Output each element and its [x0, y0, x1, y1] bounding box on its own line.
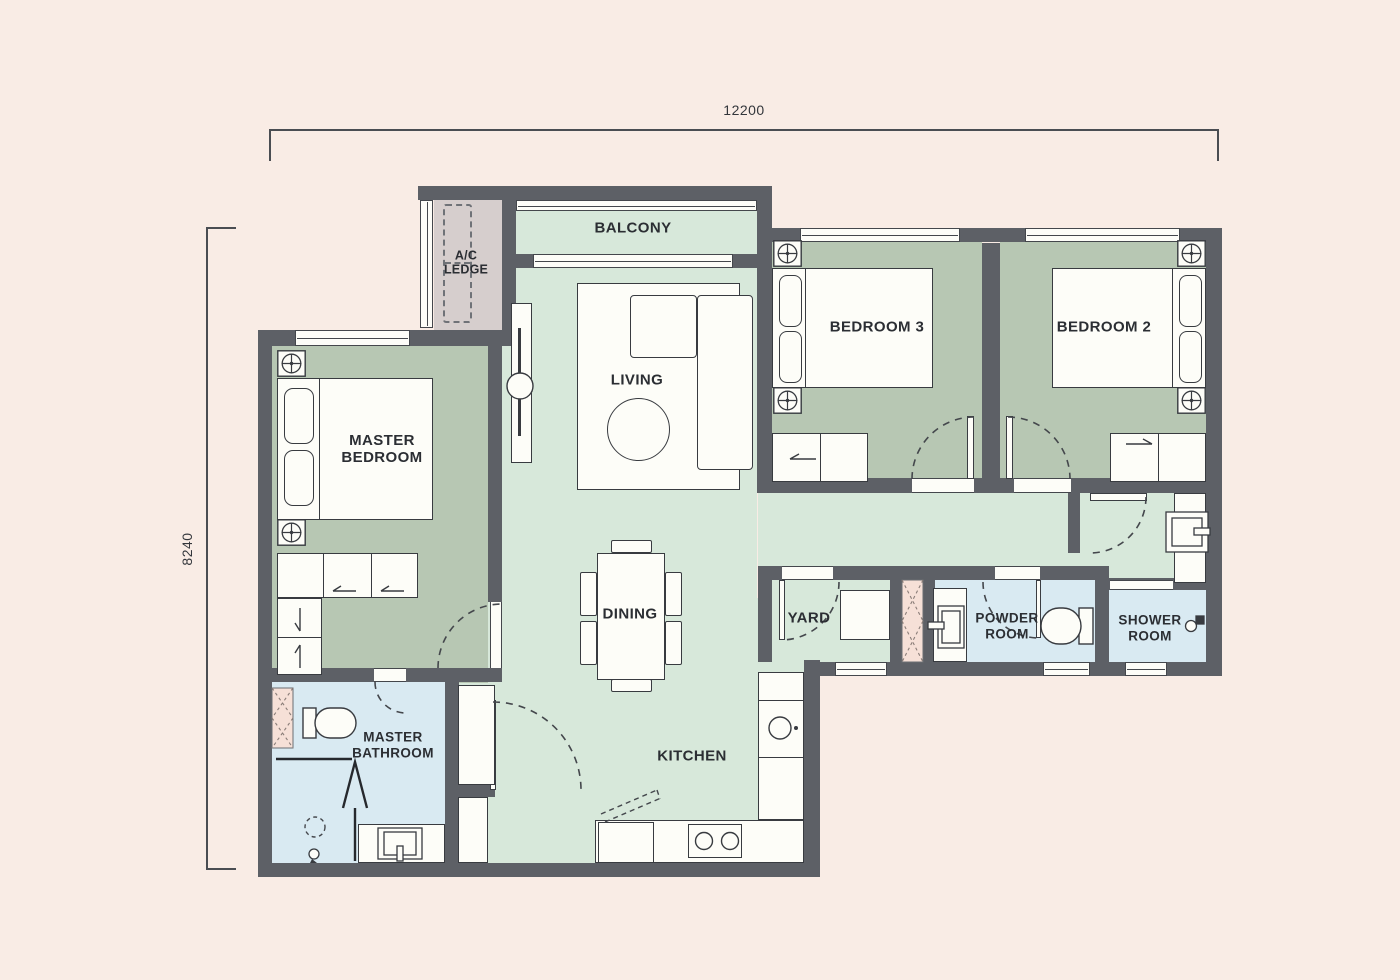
label-line: ROOM	[975, 626, 1038, 642]
kitchen-sink-unit	[758, 700, 804, 758]
balcony-railing	[516, 200, 757, 211]
dimension-tick	[269, 129, 271, 161]
window	[800, 228, 960, 242]
door-threshold	[912, 478, 974, 493]
dimension-tick	[1217, 129, 1219, 161]
door-threshold	[782, 566, 833, 580]
label-powder-room: POWDER ROOM	[975, 610, 1038, 641]
wall	[488, 346, 502, 602]
label-line: LEDGE	[444, 263, 488, 277]
label-line: A/C	[444, 249, 488, 263]
label-master-bathroom: MASTER BATHROOM	[352, 729, 434, 760]
wall	[890, 566, 902, 676]
wardrobe-divider	[820, 434, 821, 481]
window	[835, 662, 887, 676]
wardrobe-master-horizontal	[277, 553, 418, 598]
wall	[445, 682, 459, 863]
wall	[258, 863, 820, 877]
dimension-tick	[206, 227, 236, 229]
label-living: LIVING	[611, 371, 663, 388]
floor-plan: 12200 8240	[0, 0, 1400, 980]
label-line: MASTER	[352, 729, 434, 745]
wall	[757, 186, 772, 493]
label-kitchen: KITCHEN	[657, 747, 726, 764]
wardrobe-bedroom3	[772, 433, 868, 482]
door-leaf-yard	[779, 580, 785, 640]
pillow	[284, 450, 314, 506]
dining-chair	[580, 572, 597, 616]
door-leaf-bedroom3	[967, 416, 974, 479]
sofa-chaise	[630, 295, 697, 358]
tall-cabinet	[458, 685, 495, 785]
wardrobe-divider	[371, 554, 372, 597]
dining-chair	[611, 679, 652, 692]
label-yard: YARD	[788, 609, 831, 626]
sliding-door-shower	[1110, 580, 1173, 590]
window	[295, 330, 410, 346]
wall	[258, 330, 272, 877]
dimension-width-label: 12200	[723, 102, 764, 118]
label-line: MASTER	[341, 432, 422, 449]
dimension-line-left	[206, 228, 208, 870]
label-bedroom2: BEDROOM 2	[1057, 318, 1151, 335]
pillow	[284, 388, 314, 444]
wardrobe-divider	[323, 554, 324, 597]
wardrobe-divider	[278, 637, 321, 638]
washing-machine	[840, 590, 890, 640]
label-balcony: BALCONY	[595, 219, 672, 236]
dining-chair	[580, 621, 597, 665]
wall	[1068, 493, 1080, 553]
kitchen-hob-unit	[688, 824, 742, 858]
wall	[1206, 228, 1222, 676]
window	[1125, 662, 1167, 676]
coffee-table	[607, 398, 670, 461]
wall	[982, 243, 1000, 493]
dimension-line-top	[270, 129, 1219, 131]
ac-ledge-louvre	[420, 200, 433, 328]
wall	[1040, 566, 1095, 580]
window	[1043, 662, 1090, 676]
bathroom-vanity	[358, 824, 445, 863]
door-threshold	[490, 602, 502, 668]
label-shower-room: SHOWER ROOM	[1118, 612, 1181, 643]
label-line: BEDROOM	[341, 449, 422, 466]
wardrobe-divider	[1158, 434, 1159, 481]
wardrobe-bedroom2	[1110, 433, 1206, 482]
dimension-height-label: 8240	[179, 532, 195, 565]
pillow	[1179, 331, 1202, 383]
label-dining: DINING	[603, 605, 658, 622]
tv-console	[511, 303, 532, 463]
label-line: ROOM	[1118, 628, 1181, 644]
entrance-door-leaf	[1090, 493, 1147, 501]
door-threshold	[1014, 478, 1071, 493]
wall	[758, 566, 772, 662]
sofa	[697, 295, 753, 470]
pillow	[779, 331, 802, 383]
door-threshold	[995, 566, 1040, 580]
label-bedroom3: BEDROOM 3	[830, 318, 924, 335]
floor-hallway	[758, 493, 1088, 566]
dining-chair	[665, 572, 682, 616]
dining-chair	[665, 621, 682, 665]
wardrobe-master-vertical	[277, 598, 322, 675]
sliding-door-balcony	[533, 254, 733, 268]
foyer-vanity-counter	[1174, 493, 1206, 583]
label-line: POWDER	[975, 610, 1038, 626]
pillow	[779, 275, 802, 327]
kitchen-cabinet	[598, 822, 654, 863]
label-line: BATHROOM	[352, 745, 434, 761]
tv	[518, 328, 521, 436]
window	[1025, 228, 1180, 242]
dimension-tick	[206, 868, 236, 870]
label-ac-ledge: A/C LEDGE	[444, 249, 488, 278]
tall-cabinet	[458, 797, 488, 863]
wall	[974, 478, 1014, 493]
wall	[833, 566, 995, 580]
wall	[758, 566, 782, 580]
pillow	[1179, 275, 1202, 327]
wall	[418, 186, 772, 200]
label-line: SHOWER	[1118, 612, 1181, 628]
dining-chair	[611, 540, 652, 553]
door-threshold	[374, 668, 406, 682]
wall	[406, 668, 502, 682]
door-leaf-bedroom2	[1006, 416, 1013, 479]
wall	[804, 660, 820, 877]
label-master-bedroom: MASTER BEDROOM	[341, 432, 422, 467]
powder-room-vanity	[933, 588, 967, 662]
